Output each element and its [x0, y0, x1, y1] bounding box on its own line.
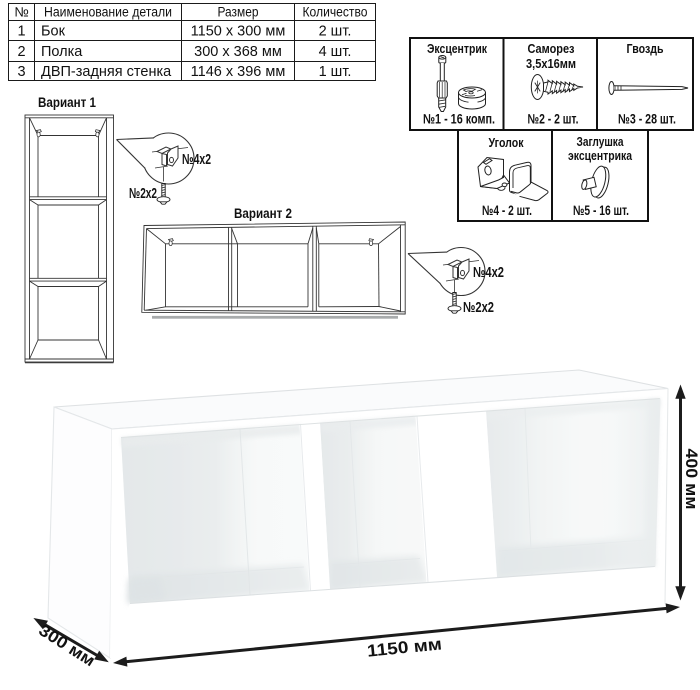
svg-text:Эксцентрик: Эксцентрик — [427, 41, 487, 56]
svg-text:3,5х16мм: 3,5х16мм — [526, 56, 576, 71]
svg-text:№2х2: №2х2 — [463, 300, 494, 316]
svg-text:№1 - 16 комп.: №1 - 16 комп. — [423, 112, 495, 127]
svg-text:Заглушка: Заглушка — [577, 134, 625, 149]
svg-text:№: № — [14, 5, 28, 20]
svg-text:Бок: Бок — [41, 24, 66, 40]
svg-text:Уголок: Уголок — [489, 135, 524, 150]
svg-text:Размер: Размер — [218, 5, 259, 20]
svg-text:2 шт.: 2 шт. — [319, 24, 352, 40]
svg-text:1150 х 300 мм: 1150 х 300 мм — [191, 24, 286, 40]
svg-text:№5 - 16 шт.: №5 - 16 шт. — [573, 203, 629, 218]
svg-text:№4 - 2 шт.: №4 - 2 шт. — [482, 203, 532, 218]
svg-text:№2 - 2 шт.: №2 - 2 шт. — [528, 112, 579, 127]
svg-text:Саморез: Саморез — [528, 41, 575, 56]
svg-text:Вариант 1: Вариант 1 — [38, 94, 96, 110]
svg-text:300 х 368 мм: 300 х 368 мм — [194, 44, 282, 60]
svg-text:1 шт.: 1 шт. — [319, 64, 352, 80]
svg-text:эксцентрика: эксцентрика — [568, 148, 633, 163]
svg-text:№2х2: №2х2 — [129, 186, 157, 202]
svg-text:ДВП-задняя стенка: ДВП-задняя стенка — [41, 64, 172, 80]
svg-text:№3 - 28 шт.: №3 - 28 шт. — [618, 112, 676, 127]
svg-text:400 мм: 400 мм — [682, 449, 700, 510]
svg-text:1: 1 — [17, 24, 25, 40]
svg-text:Вариант 2: Вариант 2 — [234, 205, 292, 221]
svg-text:Наименование детали: Наименование детали — [44, 5, 172, 20]
svg-text:2: 2 — [17, 44, 25, 60]
svg-text:№4х2: №4х2 — [182, 152, 211, 168]
svg-text:3: 3 — [17, 64, 25, 80]
svg-text:Полка: Полка — [41, 44, 83, 60]
svg-text:Гвоздь: Гвоздь — [627, 41, 664, 56]
svg-text:Количество: Количество — [303, 5, 368, 20]
svg-text:4 шт.: 4 шт. — [319, 44, 352, 60]
svg-text:1146 х 396 мм: 1146 х 396 мм — [191, 64, 286, 80]
svg-text:№4х2: №4х2 — [473, 265, 504, 281]
